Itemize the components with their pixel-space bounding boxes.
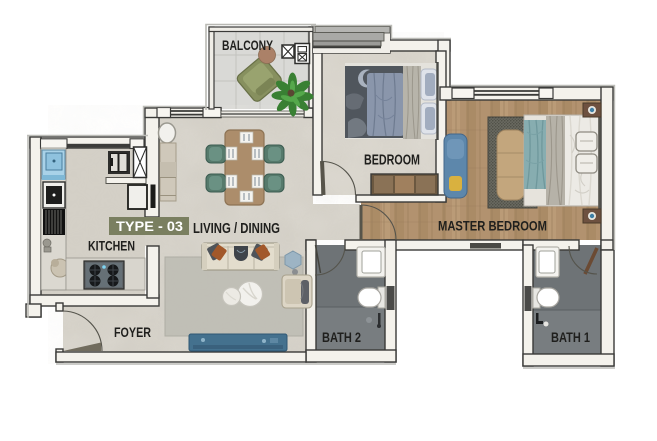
svg-text:KITCHEN: KITCHEN xyxy=(88,238,135,254)
svg-text:MASTER BEDROOM: MASTER BEDROOM xyxy=(438,218,547,234)
svg-text:BALCONY: BALCONY xyxy=(222,38,273,53)
svg-text:BATH 1: BATH 1 xyxy=(551,330,590,345)
svg-text:FOYER: FOYER xyxy=(114,324,151,340)
svg-text:TYPE - 03: TYPE - 03 xyxy=(116,219,184,234)
svg-text:BATH 2: BATH 2 xyxy=(322,330,361,345)
svg-text:BEDROOM: BEDROOM xyxy=(364,153,420,169)
svg-text:LIVING / DINING: LIVING / DINING xyxy=(193,221,280,237)
